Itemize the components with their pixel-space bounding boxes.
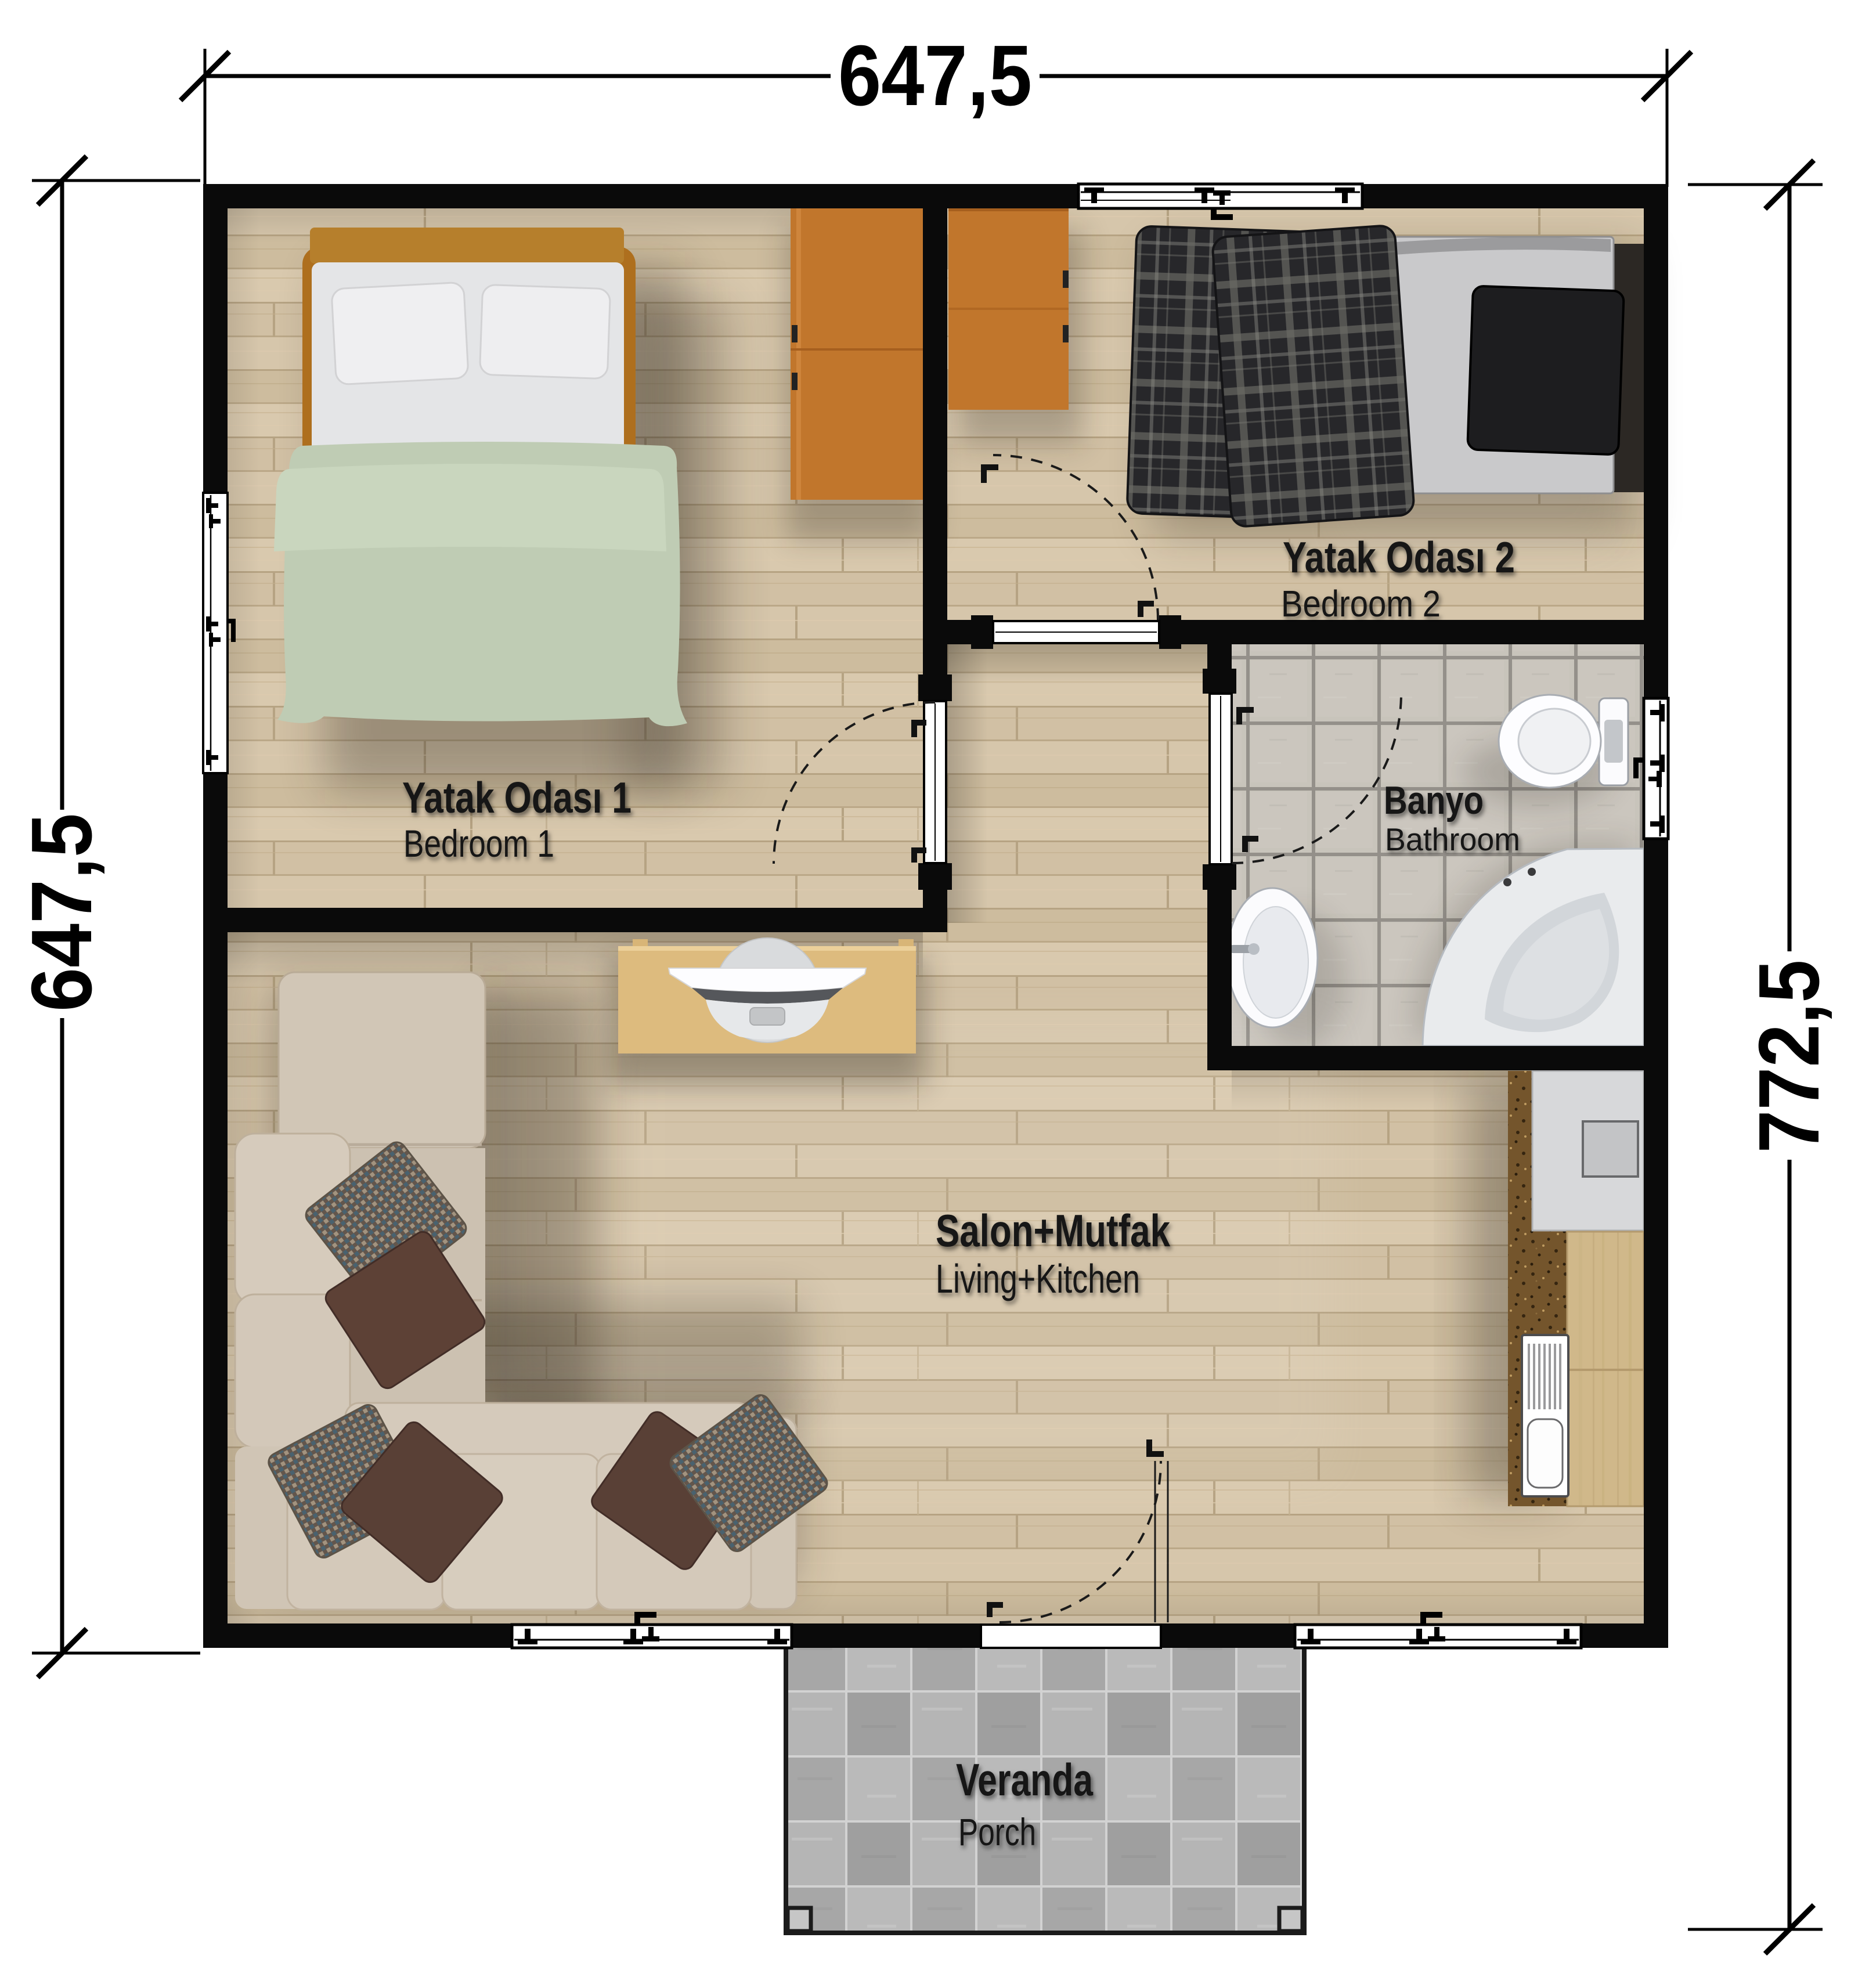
- svg-text:647,5: 647,5: [14, 813, 110, 1012]
- svg-text:Salon+Mutfak: Salon+Mutfak: [936, 1205, 1170, 1256]
- svg-text:Living+Kitchen: Living+Kitchen: [936, 1256, 1140, 1301]
- svg-text:Yatak Odası 1: Yatak Odası 1: [402, 773, 632, 822]
- svg-text:Bedroom 1: Bedroom 1: [403, 822, 554, 865]
- svg-text:Bathroom: Bathroom: [1385, 821, 1520, 857]
- svg-text:647,5: 647,5: [838, 28, 1032, 124]
- svg-text:772,5: 772,5: [1741, 960, 1837, 1153]
- svg-text:Yatak Odası 2: Yatak Odası 2: [1283, 533, 1515, 582]
- svg-text:Banyo: Banyo: [1384, 778, 1484, 822]
- svg-text:Bedroom 2: Bedroom 2: [1281, 583, 1441, 625]
- svg-text:Veranda: Veranda: [956, 1754, 1093, 1805]
- svg-text:Porch: Porch: [958, 1810, 1036, 1853]
